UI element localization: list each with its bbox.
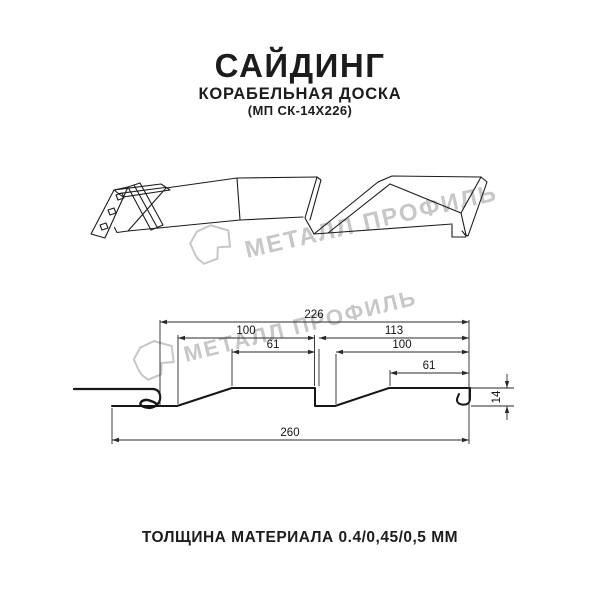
dim-left-flat: 61 [267, 339, 280, 351]
product-drawing-page: САЙДИНГ КОРАБЕЛЬНАЯ ДОСКА (МП СК-14Х226)… [0, 0, 600, 600]
thickness-note: ТОЛЩИНА МАТЕРИАЛА 0.4/0,45/0,5 ММ [0, 529, 600, 547]
dim-right-wave: 113 [385, 325, 403, 337]
watermark-text-bottom: МЕТАЛЛ ПРОФИЛЬ [181, 285, 419, 367]
dim-depth: 14 [491, 390, 503, 403]
dim-total-cover: 226 [304, 309, 323, 321]
section-profile [74, 388, 470, 408]
dim-left-wave: 100 [236, 325, 255, 337]
watermark-logo-bottom: МЕТАЛЛ ПРОФИЛЬ [131, 277, 420, 382]
dim-right-flat: 61 [423, 360, 436, 372]
watermark-text-top: МЕТАЛЛ ПРОФИЛЬ [242, 179, 500, 263]
dim-right-inner: 100 [392, 339, 411, 351]
dim-overall: 260 [280, 427, 299, 439]
technical-drawing-svg: МЕТАЛЛ ПРОФИЛЬ МЕТАЛЛ ПРОФИЛЬ [0, 0, 600, 600]
